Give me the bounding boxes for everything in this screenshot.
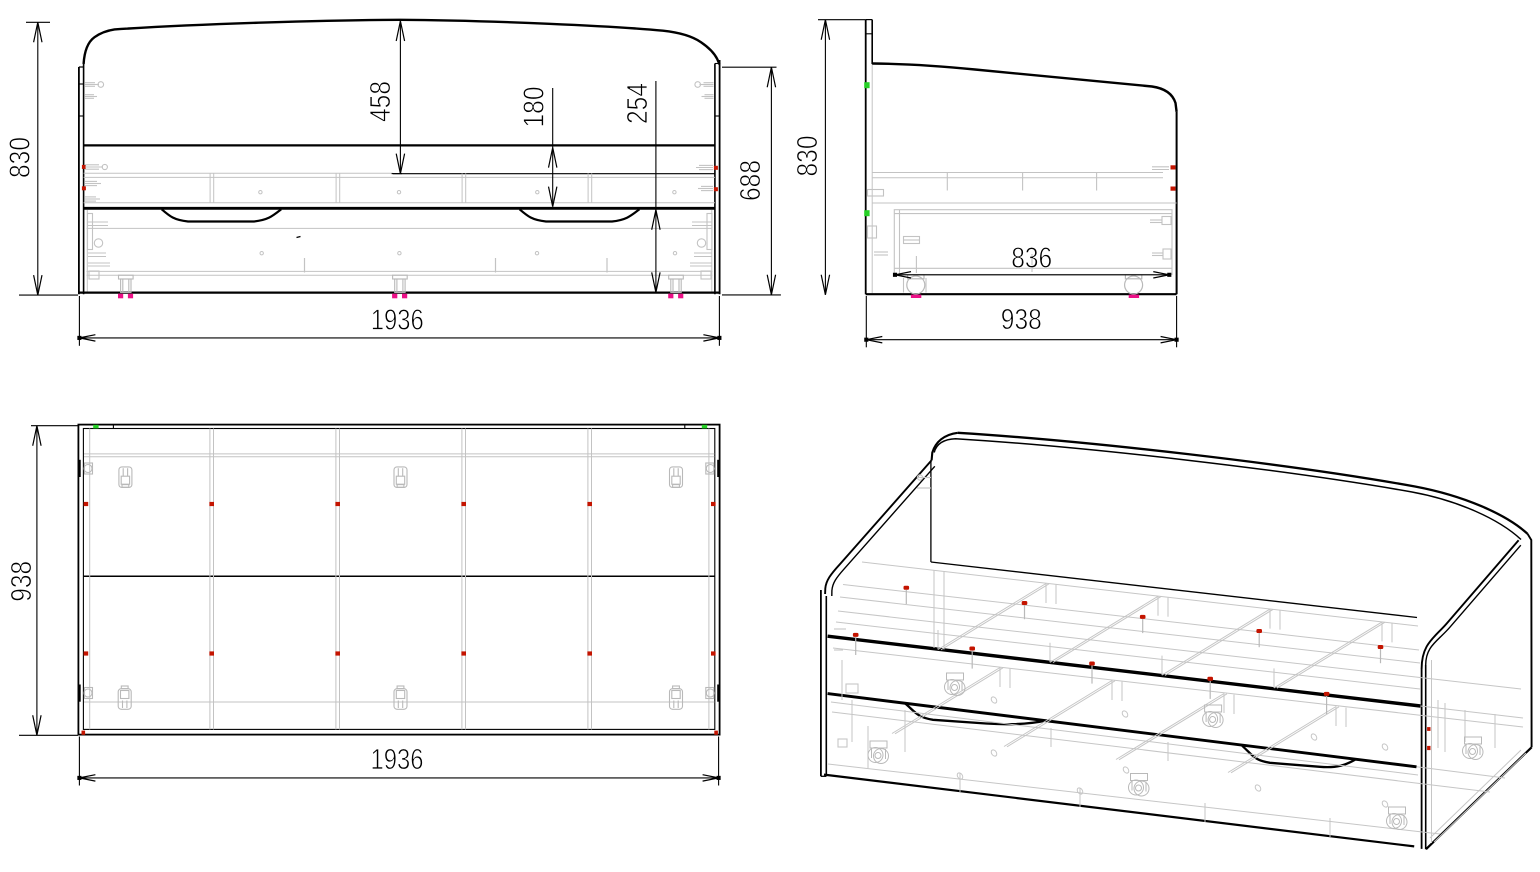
svg-text:1936: 1936: [371, 304, 424, 336]
svg-text:830: 830: [792, 136, 824, 177]
svg-text:1936: 1936: [371, 744, 424, 776]
svg-text:254: 254: [622, 83, 654, 124]
svg-text:938: 938: [6, 561, 38, 602]
svg-text:180: 180: [518, 87, 550, 128]
svg-text:458: 458: [365, 81, 397, 122]
svg-text:836: 836: [1011, 243, 1052, 275]
svg-text:938: 938: [1001, 304, 1042, 336]
svg-text:830: 830: [4, 137, 36, 178]
svg-text:688: 688: [735, 160, 767, 201]
